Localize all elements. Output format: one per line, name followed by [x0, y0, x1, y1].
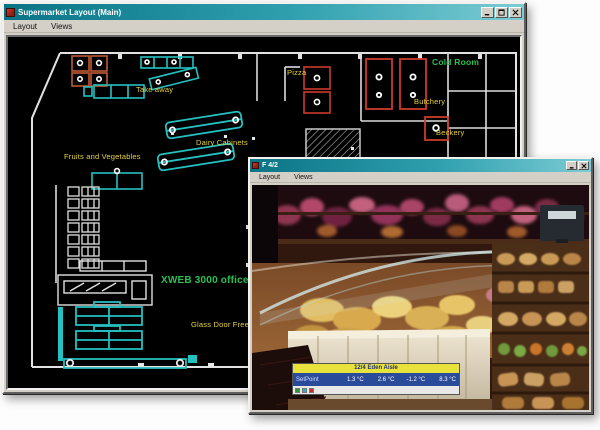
label-beckery: Beckery — [436, 128, 465, 137]
close-icon[interactable] — [509, 7, 522, 18]
deli-counter-photo: 12/4 Eden Aisle SetPoint 1.3 °C 2.6 °C -… — [252, 185, 589, 410]
camera-menu-views[interactable]: Views — [287, 172, 320, 183]
overlay-readings: SetPoint 1.3 °C 2.6 °C -1.2 °C 8.3 °C — [293, 373, 459, 386]
label-butchery: Butchery — [414, 97, 445, 106]
main-window-title: Supermarket Layout (Main) — [18, 8, 478, 17]
camera-minimize-icon[interactable] — [566, 161, 577, 170]
main-menu-bar: Layout Views — [4, 20, 524, 33]
label-fruits-vegetables: Fruits and Vegetables — [64, 152, 141, 161]
pizza-oven-units — [304, 67, 330, 113]
desktop: Supermarket Layout (Main) Layout Views — [0, 0, 600, 430]
overlay-value-3: -1.2 °C — [394, 377, 425, 383]
overlay-header: 12/4 Eden Aisle — [293, 364, 459, 373]
label-dairy-cabinets: Dairy Cabinets — [196, 138, 248, 147]
camera-menu-layout[interactable]: Layout — [252, 172, 287, 183]
status-red-icon — [309, 388, 314, 393]
overlay-status-bar — [293, 386, 459, 394]
camera-view-window: F 4/2 Layout Views — [248, 157, 593, 414]
camera-title-bar[interactable]: F 4/2 — [250, 159, 591, 172]
checkout-lanes — [68, 187, 99, 268]
produce-cabinet — [92, 169, 142, 189]
maximize-icon[interactable] — [495, 7, 508, 18]
camera-close-icon[interactable] — [578, 161, 589, 170]
overlay-value-2: 2.6 °C — [364, 377, 395, 383]
overlay-row-label: SetPoint — [296, 377, 333, 383]
label-xweb-office: XWEB 3000 office — [161, 275, 249, 286]
label-pizza: Pizza — [287, 68, 306, 77]
glass-door-freezers — [58, 302, 197, 368]
status-cyan-icon — [302, 388, 307, 393]
label-take-away: Take away — [136, 85, 173, 94]
overlay-value-4: 8.3 °C — [425, 377, 456, 383]
menu-views[interactable]: Views — [44, 20, 79, 33]
app-icon — [6, 8, 15, 17]
label-cold-room: Cold Room — [432, 57, 479, 67]
device-status-overlay: 12/4 Eden Aisle SetPoint 1.3 °C 2.6 °C -… — [292, 363, 460, 395]
camera-app-icon — [252, 162, 259, 169]
prep-room-units — [72, 56, 107, 86]
camera-window-title: F 4/2 — [262, 162, 563, 169]
menu-layout[interactable]: Layout — [6, 20, 44, 33]
overlay-value-1: 1.3 °C — [333, 377, 364, 383]
minimize-icon[interactable] — [481, 7, 494, 18]
main-title-bar[interactable]: Supermarket Layout (Main) — [4, 4, 524, 20]
status-green-icon — [295, 388, 300, 393]
camera-menu-bar: Layout Views — [250, 172, 591, 183]
